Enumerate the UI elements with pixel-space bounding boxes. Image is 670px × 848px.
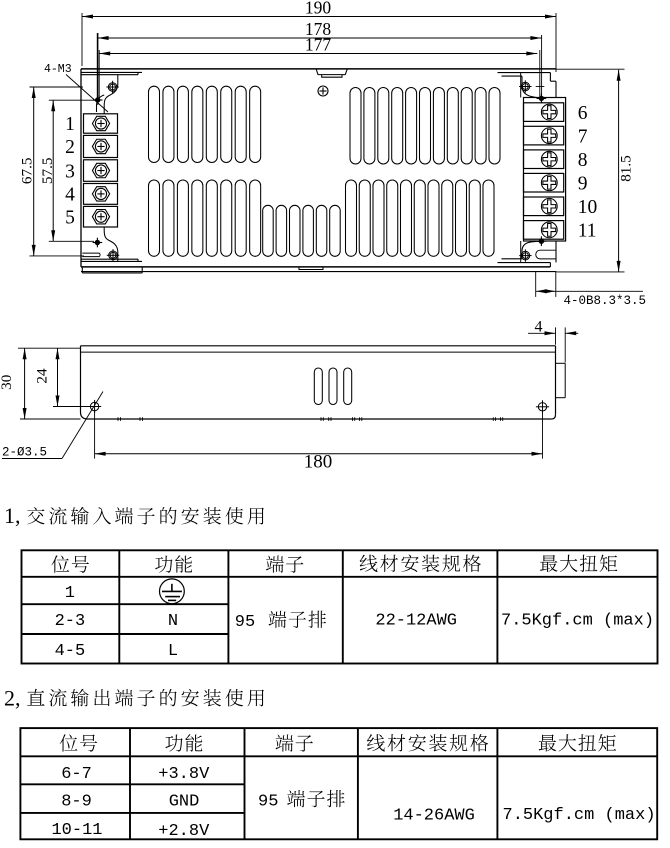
svg-text:6-7: 6-7: [61, 765, 92, 784]
svg-text:95: 95: [235, 613, 255, 632]
svg-text:5: 5: [65, 207, 75, 228]
svg-text:22-12AWG: 22-12AWG: [375, 612, 457, 631]
svg-text:190: 190: [305, 0, 332, 18]
svg-text:7: 7: [578, 126, 588, 147]
svg-text:6: 6: [578, 103, 588, 124]
svg-text:95: 95: [258, 792, 278, 811]
svg-text:4-M3: 4-M3: [44, 63, 72, 76]
svg-text:30: 30: [0, 374, 15, 390]
svg-text:1: 1: [65, 584, 75, 603]
svg-text:10-11: 10-11: [51, 821, 102, 840]
svg-text:1: 1: [65, 114, 75, 135]
svg-text:+2.8V: +2.8V: [158, 822, 210, 841]
svg-text:4: 4: [65, 185, 75, 206]
svg-text:GND: GND: [169, 793, 200, 812]
svg-text:1,: 1,: [4, 503, 21, 528]
svg-text:14-26AWG: 14-26AWG: [393, 807, 475, 826]
svg-text:2-Ø3.5: 2-Ø3.5: [2, 446, 47, 460]
svg-text:177: 177: [305, 35, 332, 55]
svg-text:4: 4: [535, 319, 543, 336]
svg-text:2,: 2,: [4, 685, 21, 710]
svg-text:24: 24: [33, 368, 50, 384]
svg-text:8-9: 8-9: [61, 793, 92, 812]
svg-text:180: 180: [304, 452, 333, 473]
svg-text:L: L: [168, 642, 178, 661]
svg-text:2-3: 2-3: [55, 612, 86, 631]
svg-text:+3.8V: +3.8V: [158, 765, 210, 784]
svg-text:4-0B8.3*3.5: 4-0B8.3*3.5: [564, 294, 647, 308]
svg-text:3: 3: [65, 161, 75, 182]
svg-text:4-5: 4-5: [55, 642, 86, 661]
svg-text:8: 8: [578, 150, 588, 171]
svg-text:81.5: 81.5: [618, 155, 635, 182]
svg-text:10: 10: [578, 197, 598, 218]
svg-text:57.5: 57.5: [39, 158, 56, 185]
svg-text:9: 9: [578, 173, 588, 194]
svg-text:67.5: 67.5: [19, 158, 36, 185]
svg-text:7.5Kgf.cm (max): 7.5Kgf.cm (max): [503, 806, 656, 825]
svg-text:11: 11: [578, 221, 597, 242]
svg-text:2: 2: [65, 137, 75, 158]
svg-text:7.5Kgf.cm (max): 7.5Kgf.cm (max): [501, 612, 654, 631]
svg-text:N: N: [168, 612, 178, 631]
